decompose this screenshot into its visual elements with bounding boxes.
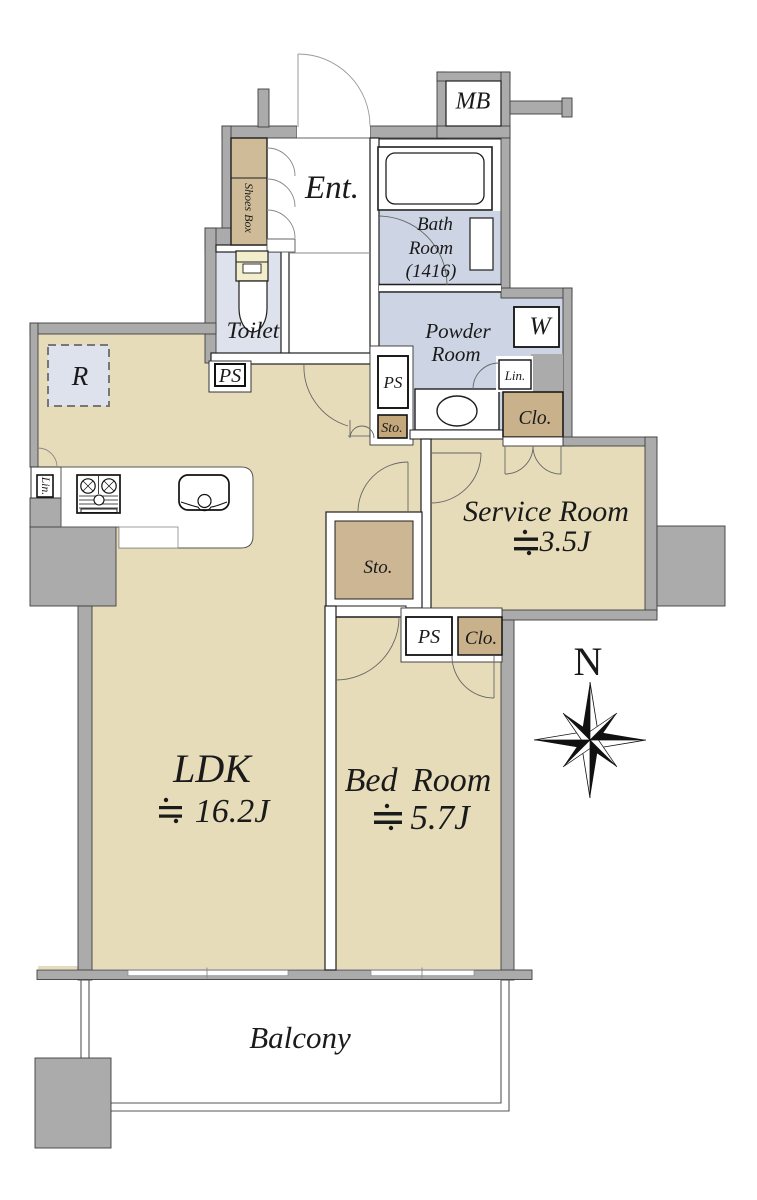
svg-text:Sto.: Sto.	[363, 557, 392, 578]
svg-text:PS: PS	[218, 365, 241, 387]
svg-text:5.7J: 5.7J	[410, 798, 471, 837]
svg-text:(1416): (1416)	[406, 261, 457, 282]
svg-text:Bath: Bath	[417, 214, 453, 235]
svg-text:PS: PS	[417, 626, 440, 648]
svg-text:LDK: LDK	[172, 746, 253, 791]
svg-text:PS: PS	[383, 373, 403, 392]
svg-text:Room: Room	[431, 342, 481, 366]
svg-text:Bed Room: Bed Room	[345, 762, 492, 799]
svg-text:R: R	[71, 361, 89, 391]
svg-text:Toilet: Toilet	[227, 318, 280, 344]
svg-text:Ent.: Ent.	[304, 170, 359, 206]
svg-text:Balcony: Balcony	[249, 1020, 351, 1055]
svg-text:16.2J: 16.2J	[195, 793, 272, 830]
svg-text:Lin.: Lin.	[504, 368, 526, 383]
svg-text:Service Room: Service Room	[463, 495, 629, 528]
svg-text:3.5J: 3.5J	[539, 525, 593, 558]
svg-text:Clo.: Clo.	[465, 628, 497, 649]
svg-text:Powder: Powder	[424, 319, 491, 343]
svg-text:MB: MB	[455, 89, 491, 115]
svg-text:N: N	[574, 639, 603, 684]
svg-text:W: W	[529, 311, 553, 340]
svg-text:Room: Room	[408, 238, 453, 259]
svg-text:Lin.: Lin.	[39, 476, 51, 495]
svg-text:Clo.: Clo.	[518, 408, 551, 429]
svg-text:Sto.: Sto.	[381, 421, 402, 436]
svg-text:Shoes Box: Shoes Box	[242, 183, 256, 233]
